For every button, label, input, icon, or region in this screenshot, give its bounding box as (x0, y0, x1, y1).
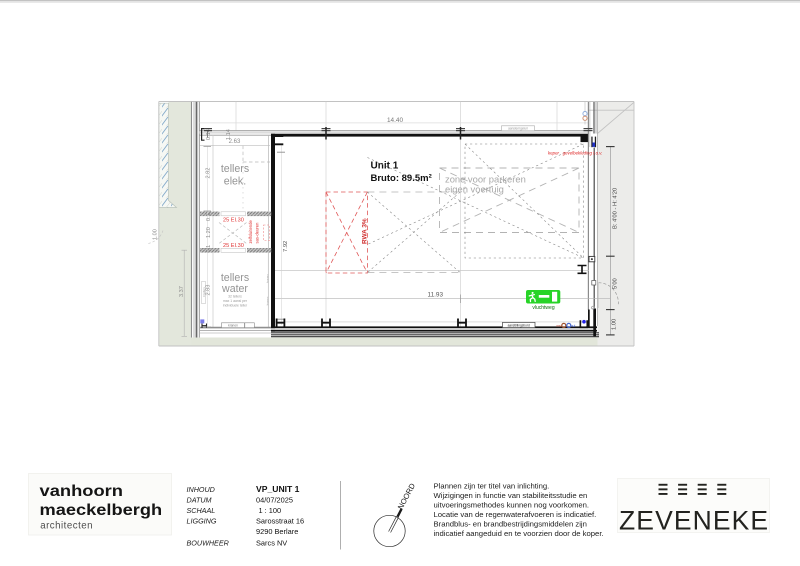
svg-text:1 : 100: 1 : 100 (259, 506, 282, 515)
svg-text:9290 Berlare: 9290 Berlare (256, 527, 298, 536)
svg-text:VP_UNIT 1: VP_UNIT 1 (256, 484, 300, 494)
svg-text:kranen: kranen (228, 324, 238, 328)
svg-text:uitvoeringsmethodes kunnen nog: uitvoeringsmethodes kunnen nog voorkomen… (434, 501, 590, 510)
svg-text:kranen: kranen (265, 296, 269, 305)
svg-text:5'00: 5'00 (613, 278, 619, 289)
svg-text:1.00: 1.00 (612, 319, 618, 330)
svg-text:ZEVENEKE: ZEVENEKE (619, 506, 769, 536)
svg-text:Brandblus- en brandbestrijding: Brandblus- en brandbestrijdingsmiddelen … (434, 520, 587, 529)
svg-text:Locatie van de regenwaterafvoe: Locatie van de regenwaterafvoeren is ind… (434, 510, 597, 519)
svg-text:elek.: elek. (224, 176, 246, 188)
svg-text:zelfsluitende: zelfsluitende (248, 220, 253, 244)
svg-text:SCHAAL: SCHAAL (187, 506, 216, 515)
svg-text:mv: mv (557, 324, 562, 328)
svg-text:indicatief aangeduid en te voo: indicatief aangeduid en te voorzien door… (434, 529, 604, 538)
svg-text:keper gevelbekleding t.o.v.: keper gevelbekleding t.o.v. (548, 151, 602, 156)
svg-text:BOUWHEER: BOUWHEER (187, 539, 229, 548)
svg-text:individuele teller: individuele teller (223, 304, 248, 308)
svg-text:max 1 aansl per: max 1 aansl per (223, 299, 248, 303)
svg-text:Bruto: 89.5m²: Bruto: 89.5m² (371, 173, 432, 184)
svg-text:RWA 3%: RWA 3% (361, 218, 368, 244)
svg-text:maeckelbergh: maeckelbergh (40, 501, 163, 519)
svg-text:B: 4'00 - H: 4'20: B: 4'00 - H: 4'20 (613, 188, 619, 229)
svg-text:11.93: 11.93 (428, 291, 444, 298)
svg-text:architecten: architecten (40, 521, 93, 532)
svg-text:2.82: 2.82 (206, 168, 212, 179)
svg-text:14.40: 14.40 (387, 117, 403, 124)
svg-text:INHOUD: INHOUD (187, 485, 215, 494)
svg-text:water: water (221, 283, 248, 295)
svg-text:0.1: 0.1 (206, 245, 212, 253)
svg-text:tellers: tellers (221, 272, 249, 284)
svg-text:vanhoorn: vanhoorn (40, 482, 123, 500)
svg-text:Unit 1: Unit 1 (371, 160, 399, 171)
svg-text:Sarcs NV: Sarcs NV (256, 539, 287, 548)
svg-text:eigen voertuig: eigen voertuig (445, 183, 504, 194)
svg-text:aanstillingsbord: aanstillingsbord (508, 324, 530, 328)
svg-text:1.20: 1.20 (206, 227, 212, 238)
svg-text:25 EI.30: 25 EI.30 (223, 218, 244, 224)
svg-text:tellers: tellers (221, 163, 249, 175)
svg-text:sas-deuren: sas-deuren (255, 222, 260, 244)
svg-text:04/07/2025: 04/07/2025 (256, 495, 293, 504)
svg-text:DATUM: DATUM (187, 495, 212, 504)
svg-text:25 EI.30: 25 EI.30 (223, 243, 244, 249)
svg-text:Wijzigingen in functie van sta: Wijzigingen in functie van stabiliteitss… (434, 491, 588, 500)
svg-text:0.1: 0.1 (206, 213, 212, 221)
svg-text:1.14: 1.14 (226, 129, 232, 140)
svg-text:Plannen zijn ter titel van inl: Plannen zijn ter titel van inlichting. (434, 482, 550, 491)
svg-text:nul: nul (571, 324, 576, 328)
svg-text:Sarosstraat 16: Sarosstraat 16 (256, 517, 304, 526)
svg-text:aanslemgeluri: aanslemgeluri (508, 127, 528, 131)
svg-text:32 tellers: 32 tellers (228, 295, 242, 299)
svg-text:LIGGING: LIGGING (187, 517, 217, 526)
svg-text:kranen: kranen (265, 274, 269, 283)
svg-text:vluchtweg: vluchtweg (532, 305, 554, 311)
svg-text:2.83: 2.83 (206, 285, 212, 296)
svg-text:1.00: 1.00 (153, 229, 159, 240)
svg-text:7.92: 7.92 (283, 241, 289, 252)
